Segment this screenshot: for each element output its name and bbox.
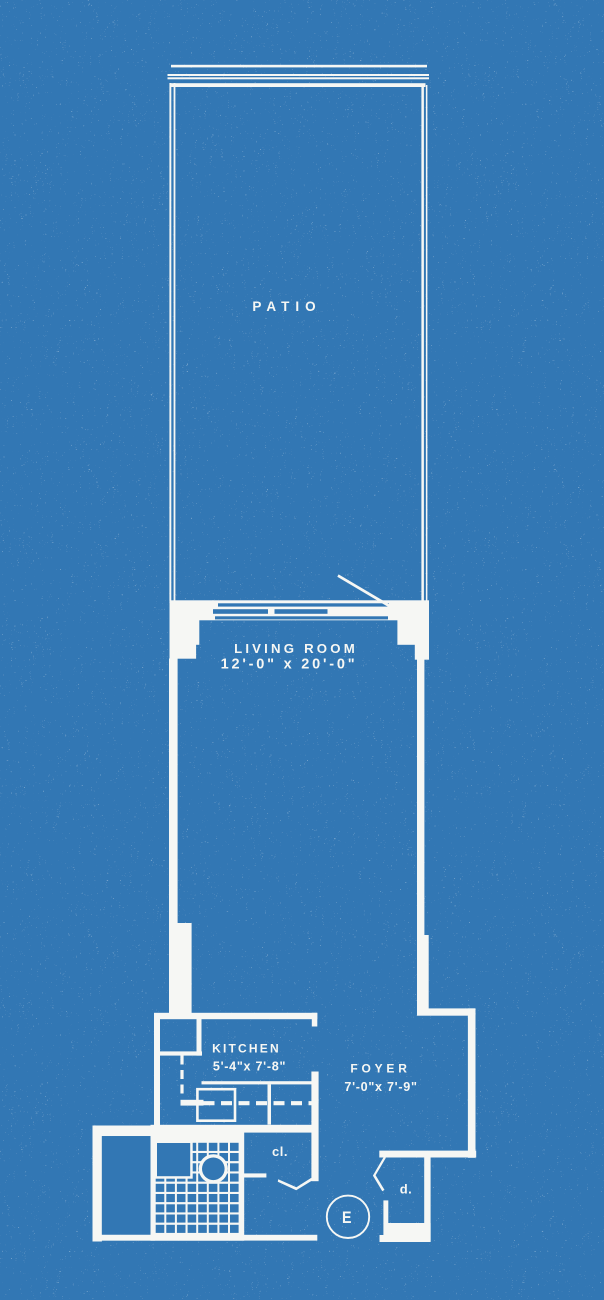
svg-text:12'-0" x 20'-0": 12'-0" x 20'-0" — [221, 657, 358, 673]
svg-text:LIVING ROOM: LIVING ROOM — [234, 641, 358, 656]
svg-text:E: E — [342, 1209, 352, 1227]
svg-text:7'-0"x 7'-9": 7'-0"x 7'-9" — [344, 1080, 417, 1094]
svg-text:FOYER: FOYER — [350, 1062, 410, 1076]
svg-text:5'-4"x 7'-8": 5'-4"x 7'-8" — [213, 1060, 286, 1074]
svg-text:KITCHEN: KITCHEN — [212, 1042, 281, 1056]
svg-text:d.: d. — [400, 1182, 413, 1197]
svg-text:cl.: cl. — [272, 1144, 288, 1159]
svg-text:PATIO: PATIO — [252, 299, 321, 314]
